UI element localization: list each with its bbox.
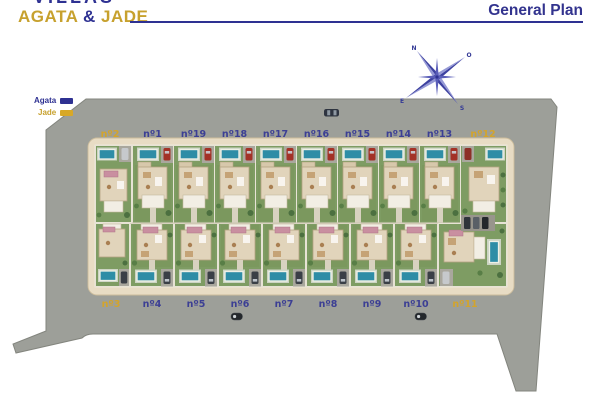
- plot-label-n18: nº18: [222, 129, 248, 140]
- brand-logo: VILLAS AGATA & JADE: [18, 0, 130, 26]
- villa-plot-n13: [420, 146, 461, 224]
- plot-label-n10: nº10: [403, 299, 429, 310]
- villa-plot-n15: [338, 146, 379, 224]
- compass-letter-o: O: [466, 52, 471, 59]
- villa-plot-n12-jade: [461, 146, 507, 223]
- legend-label-jade: Jade: [38, 108, 56, 117]
- legend: Agata Jade: [34, 96, 73, 120]
- plot-label-n14: nº14: [386, 129, 412, 140]
- utility-box-icon: [231, 313, 243, 320]
- villa-plot-n7: [263, 224, 306, 287]
- villa-plot-n1: [133, 146, 174, 224]
- villa-plot-n8: [307, 224, 350, 287]
- legend-swatch-jade: [60, 110, 73, 116]
- utility-box-icon: [415, 313, 427, 320]
- plot-label-n3: nº3: [102, 299, 121, 310]
- plot-label-n13: nº13: [427, 129, 452, 140]
- villa-plot-n3-jade: [96, 224, 130, 287]
- legend-label-agata: Agata: [34, 96, 56, 105]
- plot-label-n4: nº4: [143, 299, 162, 310]
- logo-villas-text: VILLAS: [18, 0, 130, 7]
- villa-plot-n2-jade: [96, 146, 132, 223]
- villa-plot-n18: [215, 146, 256, 224]
- parking-area: [461, 215, 495, 231]
- site-plan: nº2 nº1 nº19 nº18 nº17 nº16 nº15 nº14 nº…: [0, 0, 600, 405]
- plot-label-n6: nº6: [231, 299, 250, 310]
- plot-label-n12: nº12: [470, 129, 495, 140]
- villa-plot-n16: [297, 146, 338, 224]
- villa-plot-n4: [131, 224, 174, 287]
- legend-swatch-agata: [60, 98, 73, 104]
- page-title: General Plan: [488, 2, 583, 20]
- plot-label-n15: nº15: [345, 129, 370, 140]
- villa-plot-n9: [351, 224, 394, 287]
- villa-plot-n19: [174, 146, 215, 224]
- villa-plot-n14: [379, 146, 420, 224]
- plot-label-n1: nº1: [143, 129, 162, 140]
- car-on-road-icon: [324, 109, 339, 117]
- plot-label-n16: nº16: [304, 129, 330, 140]
- plot-label-n9: nº9: [363, 299, 382, 310]
- logo-agata-jade-text: AGATA & JADE: [18, 8, 130, 26]
- plot-label-n19: nº19: [181, 129, 206, 140]
- villa-plot-n6: [219, 224, 262, 287]
- compass-letter-e: E: [400, 98, 404, 105]
- plot-label-n5: nº5: [187, 299, 206, 310]
- plot-label-n11: nº11: [452, 299, 477, 310]
- plot-label-n7: nº7: [275, 299, 294, 310]
- plot-label-n2: nº2: [101, 129, 120, 140]
- header-divider: [130, 21, 583, 23]
- villa-plot-n5: [175, 224, 218, 287]
- logo-ampersand: &: [83, 7, 96, 26]
- compass-letter-n: N: [411, 45, 416, 52]
- legend-row-agata: Agata: [34, 96, 73, 105]
- logo-word-agata: AGATA: [18, 7, 78, 26]
- compass-letter-s: S: [460, 105, 464, 112]
- legend-row-jade: Jade: [34, 108, 73, 117]
- villa-plot-n11-jade: [439, 224, 507, 287]
- villa-plot-n10: [395, 224, 438, 287]
- plot-label-n8: nº8: [319, 299, 338, 310]
- general-plan-page: VILLAS AGATA & JADE General Plan Agata J…: [0, 0, 600, 405]
- plot-label-n17: nº17: [263, 129, 288, 140]
- villa-plot-n17: [256, 146, 297, 224]
